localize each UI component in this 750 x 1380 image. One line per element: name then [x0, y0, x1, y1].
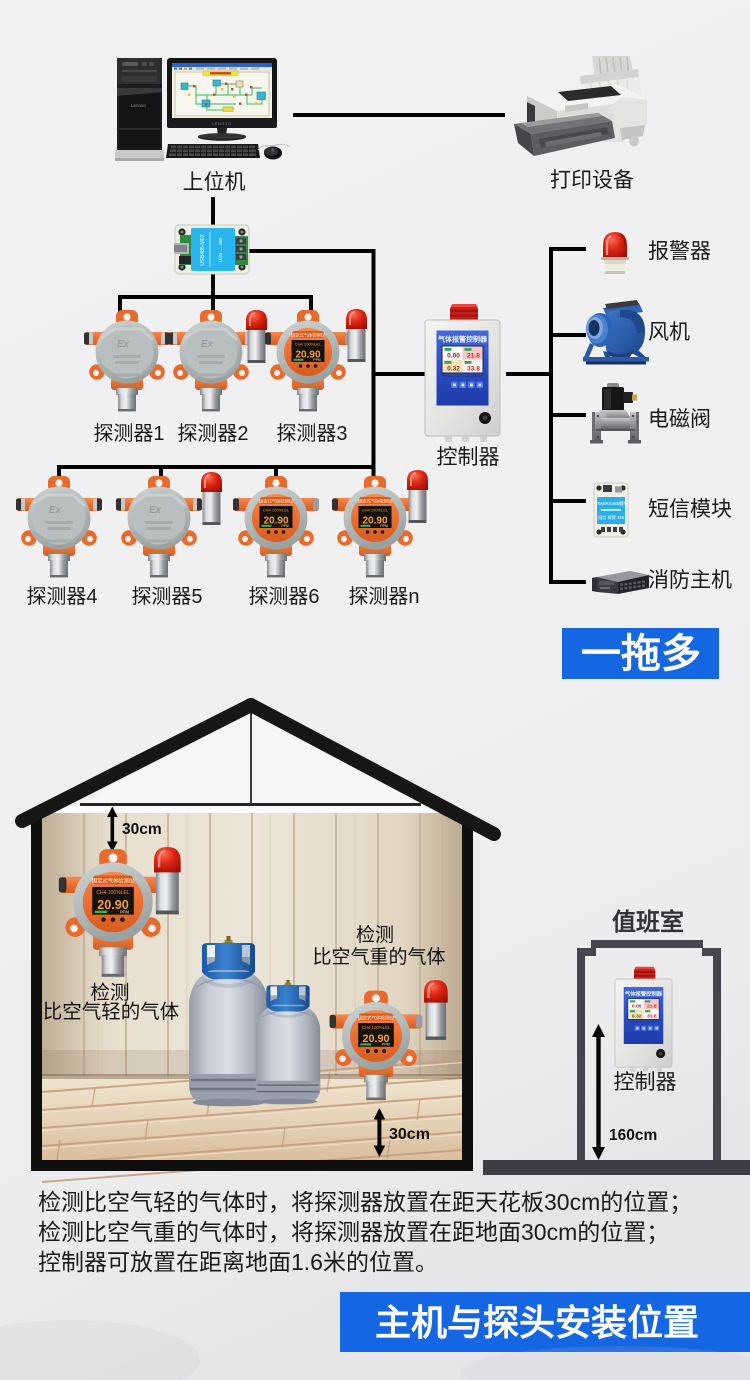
svg-text:短信 报警 485: 短信 报警 485 — [598, 514, 625, 521]
svg-text:30cm: 30cm — [122, 821, 162, 838]
svg-text:探测器1: 探测器1 — [93, 422, 164, 445]
svg-text:30cm: 30cm — [389, 1126, 430, 1143]
svg-text:Lenovo: Lenovo — [131, 103, 146, 108]
svg-text:控制器: 控制器 — [614, 1071, 677, 1094]
svg-text:探测器2: 探测器2 — [177, 422, 248, 445]
svg-text:探测器5: 探测器5 — [131, 585, 202, 608]
svg-text:LENOVO: LENOVO — [212, 122, 231, 126]
svg-text:探测器n: 探测器n — [348, 585, 419, 608]
svg-text:打印设备: 打印设备 — [550, 169, 634, 192]
svg-text:主机与探头安装位置: 主机与探头安装位置 — [375, 1302, 699, 1343]
svg-text:短信模块: 短信模块 — [648, 498, 732, 521]
svg-text:值班室: 值班室 — [612, 908, 684, 936]
svg-text:GSM/RS485模块: GSM/RS485模块 — [594, 500, 629, 507]
svg-text:160cm: 160cm — [609, 1127, 657, 1144]
svg-text:检测比空气轻的气体时，将探测器放置在距天花板30cm的位置；: 检测比空气轻的气体时，将探测器放置在距天花板30cm的位置； — [38, 1189, 692, 1215]
svg-text:控制器可放置在距离地面1.6米的位置。: 控制器可放置在距离地面1.6米的位置。 — [38, 1249, 438, 1275]
svg-text:报警器: 报警器 — [648, 240, 711, 263]
svg-text:比空气轻的气体: 比空气轻的气体 — [43, 1001, 180, 1023]
svg-text:消防主机: 消防主机 — [648, 569, 732, 592]
svg-text:检测: 检测 — [356, 924, 394, 946]
svg-text:检测比空气重的气体时，将探测器放置在距地面30cm的位置；: 检测比空气重的气体时，将探测器放置在距地面30cm的位置； — [38, 1219, 669, 1245]
svg-text:探测器6: 探测器6 — [248, 585, 319, 608]
svg-text:比空气重的气体: 比空气重的气体 — [312, 946, 445, 968]
svg-text:一拖多: 一拖多 — [581, 632, 701, 676]
svg-text:上位机: 上位机 — [183, 171, 246, 194]
svg-text:USB ↔ 485: USB ↔ 485 — [218, 237, 223, 262]
svg-text:控制器: 控制器 — [437, 446, 500, 469]
svg-text:电磁阀: 电磁阀 — [648, 408, 711, 431]
svg-text:探测器4: 探测器4 — [26, 585, 97, 608]
svg-text:USB485-M02: USB485-M02 — [200, 234, 206, 265]
svg-text:探测器3: 探测器3 — [276, 422, 347, 445]
svg-text:风机: 风机 — [648, 321, 690, 344]
